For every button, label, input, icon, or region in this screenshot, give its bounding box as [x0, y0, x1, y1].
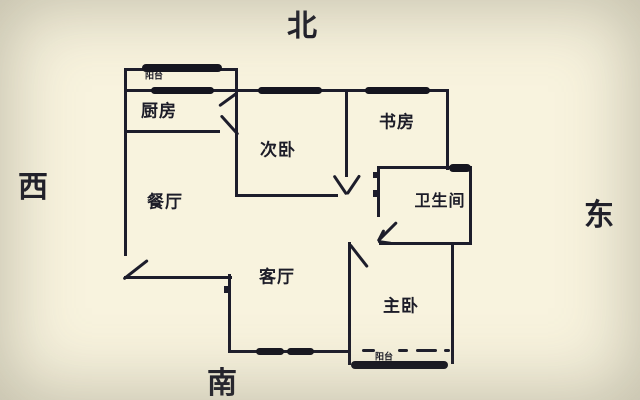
window-bar-north-balcony: [142, 64, 222, 72]
north-balcony-label: 阳台: [145, 72, 163, 81]
wall-master-left: [348, 242, 351, 365]
balcony-dash: [444, 349, 450, 352]
wall-outer-left: [124, 68, 127, 256]
wall-bedroom-study-divider: [345, 89, 348, 177]
wall-study-right: [446, 89, 449, 170]
compass-east-label: 东: [584, 201, 614, 231]
window-bar-second-bedroom: [258, 87, 322, 94]
balcony-dash: [398, 349, 408, 352]
compass-west-label: 西: [18, 173, 48, 203]
wall-bathroom-bottom: [379, 242, 472, 245]
wall-dining-bottom: [124, 276, 232, 279]
window-bar-study: [365, 87, 430, 94]
door-frame-tick: [224, 286, 229, 293]
compass-north-label: 北: [287, 12, 317, 42]
window-bar-living-2: [287, 348, 314, 355]
kitchen-label: 厨房: [141, 103, 177, 120]
master-door-swing-line: [349, 243, 369, 267]
study-label: 书房: [379, 114, 415, 131]
window-bar-south-balcony: [351, 361, 448, 369]
window-bar-kitchen: [151, 87, 214, 94]
floor-plan: 北 西 东 南 厨房 次卧 书房 餐厅 卫生间 客厅 主卧 阳台 阳台: [0, 0, 640, 400]
bathroom-label: 卫生间: [414, 194, 465, 210]
window-bar-living-1: [256, 348, 284, 355]
balcony-dash: [362, 349, 375, 352]
wall-kitchen-bottom: [124, 130, 220, 133]
master-bedroom-label: 主卧: [383, 298, 419, 315]
door-frame-tick: [373, 190, 378, 197]
wall-master-right: [451, 242, 454, 364]
wall-second-bedroom-bottom: [236, 194, 338, 197]
compass-south-label: 南: [207, 369, 237, 399]
living-room-label: 客厅: [259, 269, 295, 286]
corridor-arrow-icon: [346, 175, 361, 196]
balcony-dash: [416, 349, 437, 352]
window-bar-bathroom: [449, 164, 471, 172]
second-bedroom-label: 次卧: [260, 142, 296, 159]
dining-room-label: 餐厅: [147, 194, 183, 211]
wall-bathroom-right: [469, 166, 472, 245]
door-frame-tick: [373, 172, 378, 178]
